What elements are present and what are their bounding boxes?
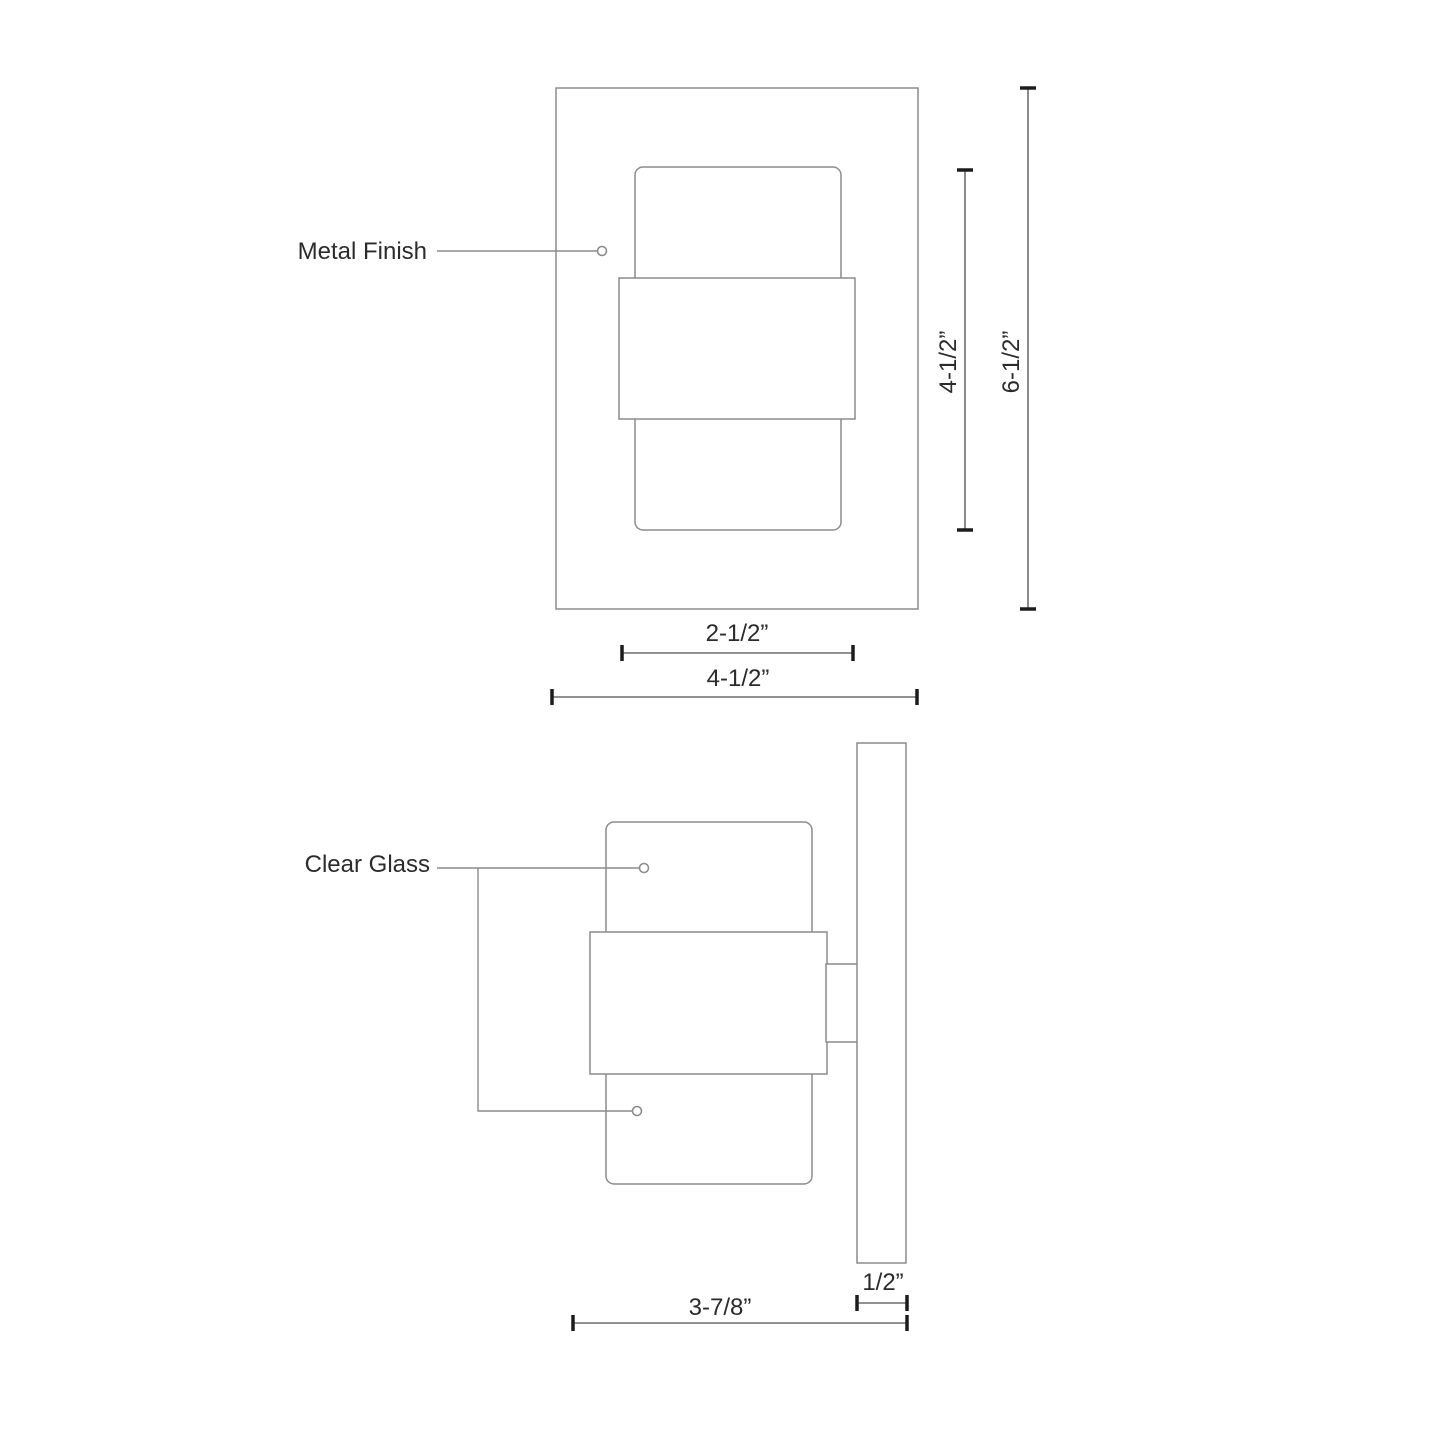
dimension-label: 1/2” <box>862 1269 903 1296</box>
dim-front-overall-height: 6-1/2” <box>998 88 1036 609</box>
sconce-dimension-drawing: Metal Finish 4-1/2” 6-1/2” 2-1/2” <box>0 0 1445 1445</box>
front-metal-band-outline <box>619 278 855 419</box>
dimension-label: 3-7/8” <box>689 1294 752 1321</box>
clear-glass-leader-dot-top <box>640 864 649 873</box>
side-view: Clear Glass 1/2” 3-7/8” <box>305 743 907 1331</box>
metal-finish-leader-dot <box>598 247 607 256</box>
dimension-label: 6-1/2” <box>998 331 1025 394</box>
dimension-label: 4-1/2” <box>935 331 962 394</box>
dim-front-inner-width: 2-1/2” <box>622 620 853 661</box>
metal-finish-label: Metal Finish <box>298 238 427 265</box>
dim-front-inner-height: 4-1/2” <box>935 170 973 530</box>
dim-front-overall-width: 4-1/2” <box>552 665 917 705</box>
dimension-label: 2-1/2” <box>706 620 769 647</box>
side-mounting-arm-outline <box>826 964 858 1042</box>
side-metal-band-outline <box>590 932 827 1074</box>
dim-side-plate-depth: 1/2” <box>857 1269 907 1311</box>
clear-glass-label: Clear Glass <box>305 851 430 878</box>
dimension-label: 4-1/2” <box>707 665 770 692</box>
drawing-canvas: Metal Finish 4-1/2” 6-1/2” 2-1/2” <box>0 0 1445 1445</box>
clear-glass-leader-dot-bottom <box>633 1107 642 1116</box>
side-backplate-outline <box>857 743 906 1263</box>
front-view: Metal Finish 4-1/2” 6-1/2” 2-1/2” <box>298 88 1036 705</box>
